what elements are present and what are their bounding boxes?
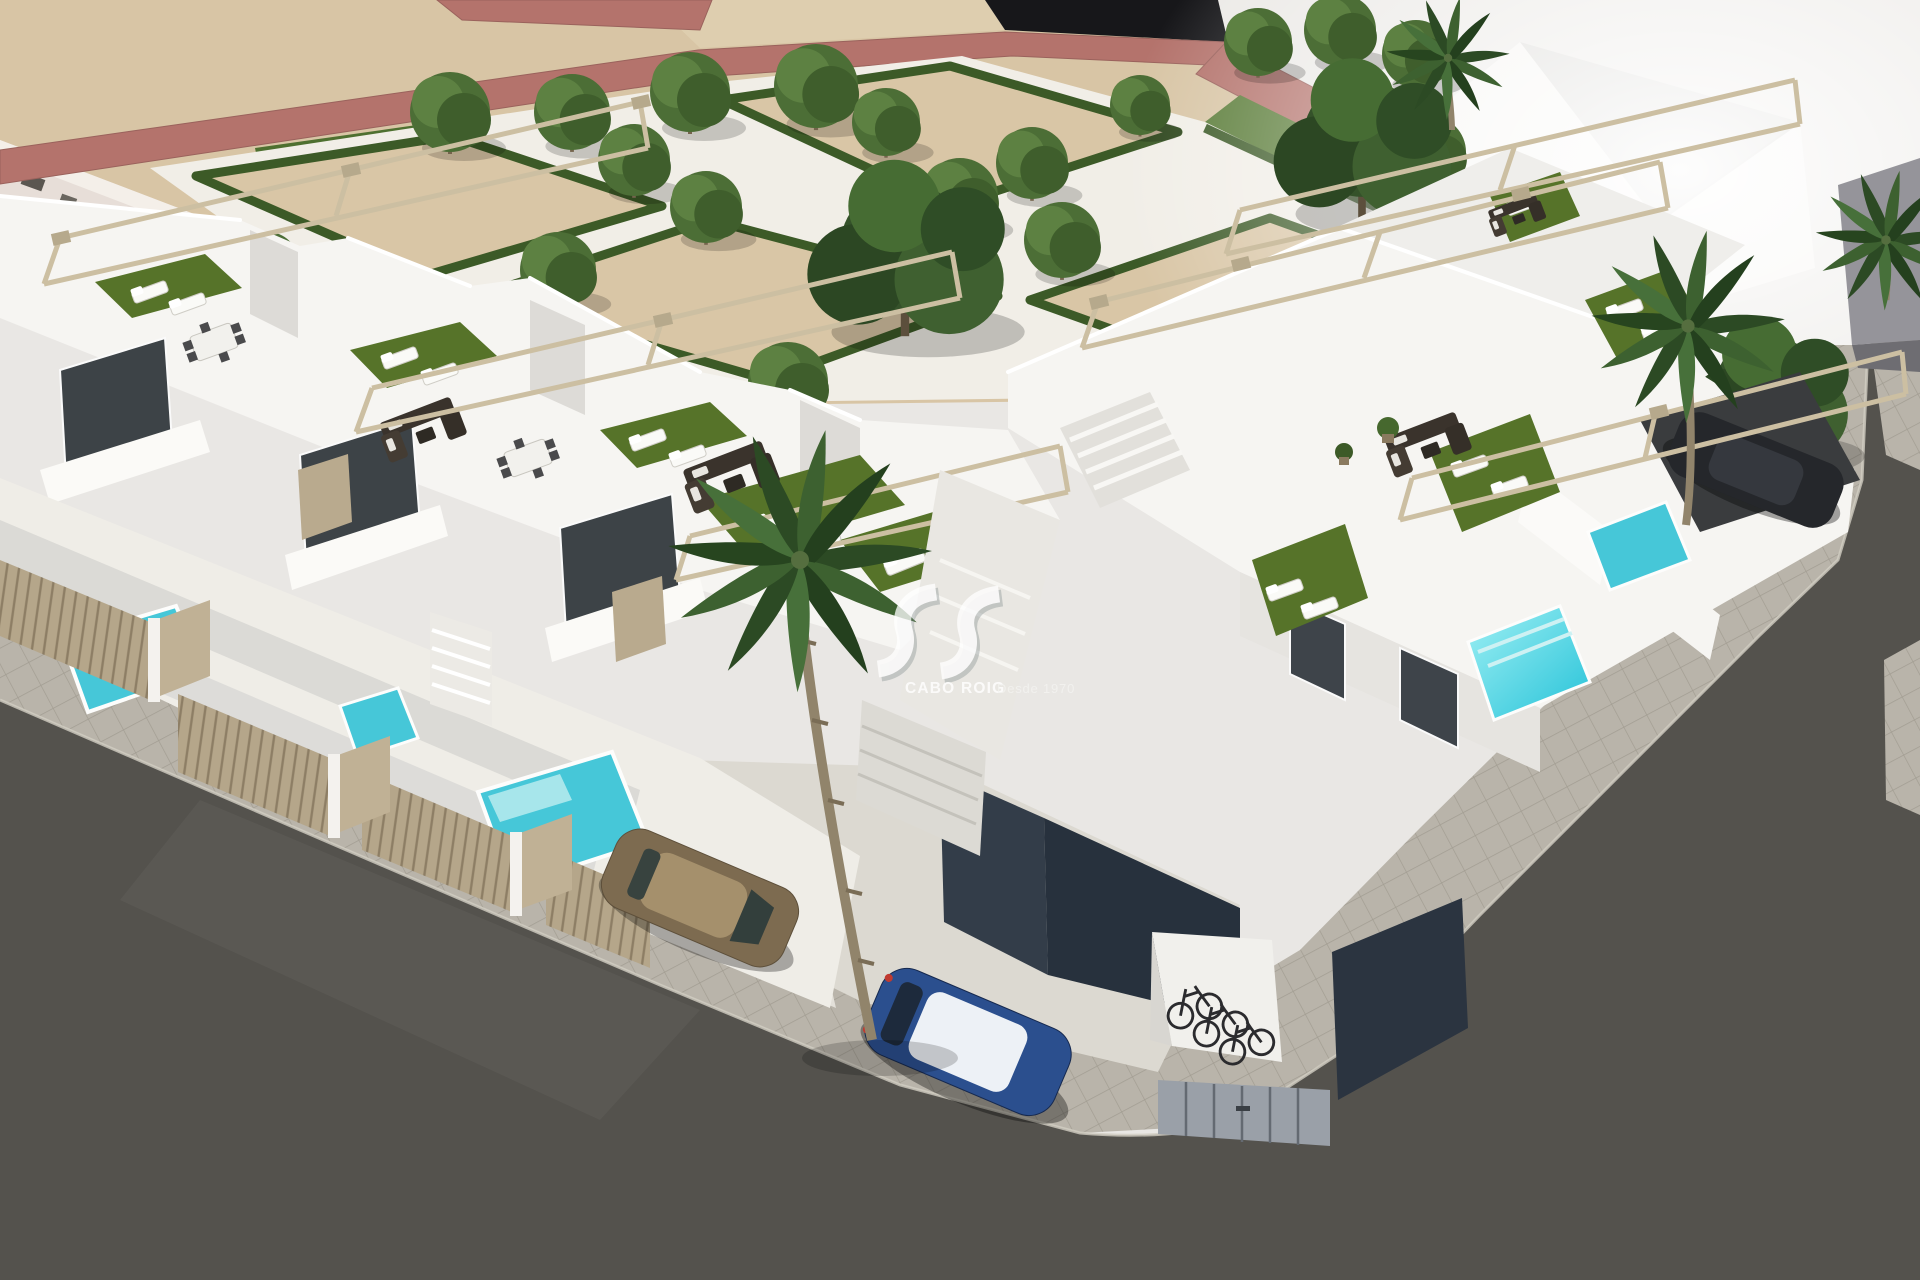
fence-pillar <box>148 618 160 702</box>
watermark-tagline: Desde 1970 <box>997 681 1075 696</box>
fence-pillar <box>510 832 522 916</box>
watermark-brand: CABO ROIG <box>905 680 1005 697</box>
render-image: CABO ROIG Desde 1970 <box>0 0 1920 1280</box>
far-sidewalk <box>1884 640 1920 815</box>
fence-pillar <box>328 754 340 838</box>
